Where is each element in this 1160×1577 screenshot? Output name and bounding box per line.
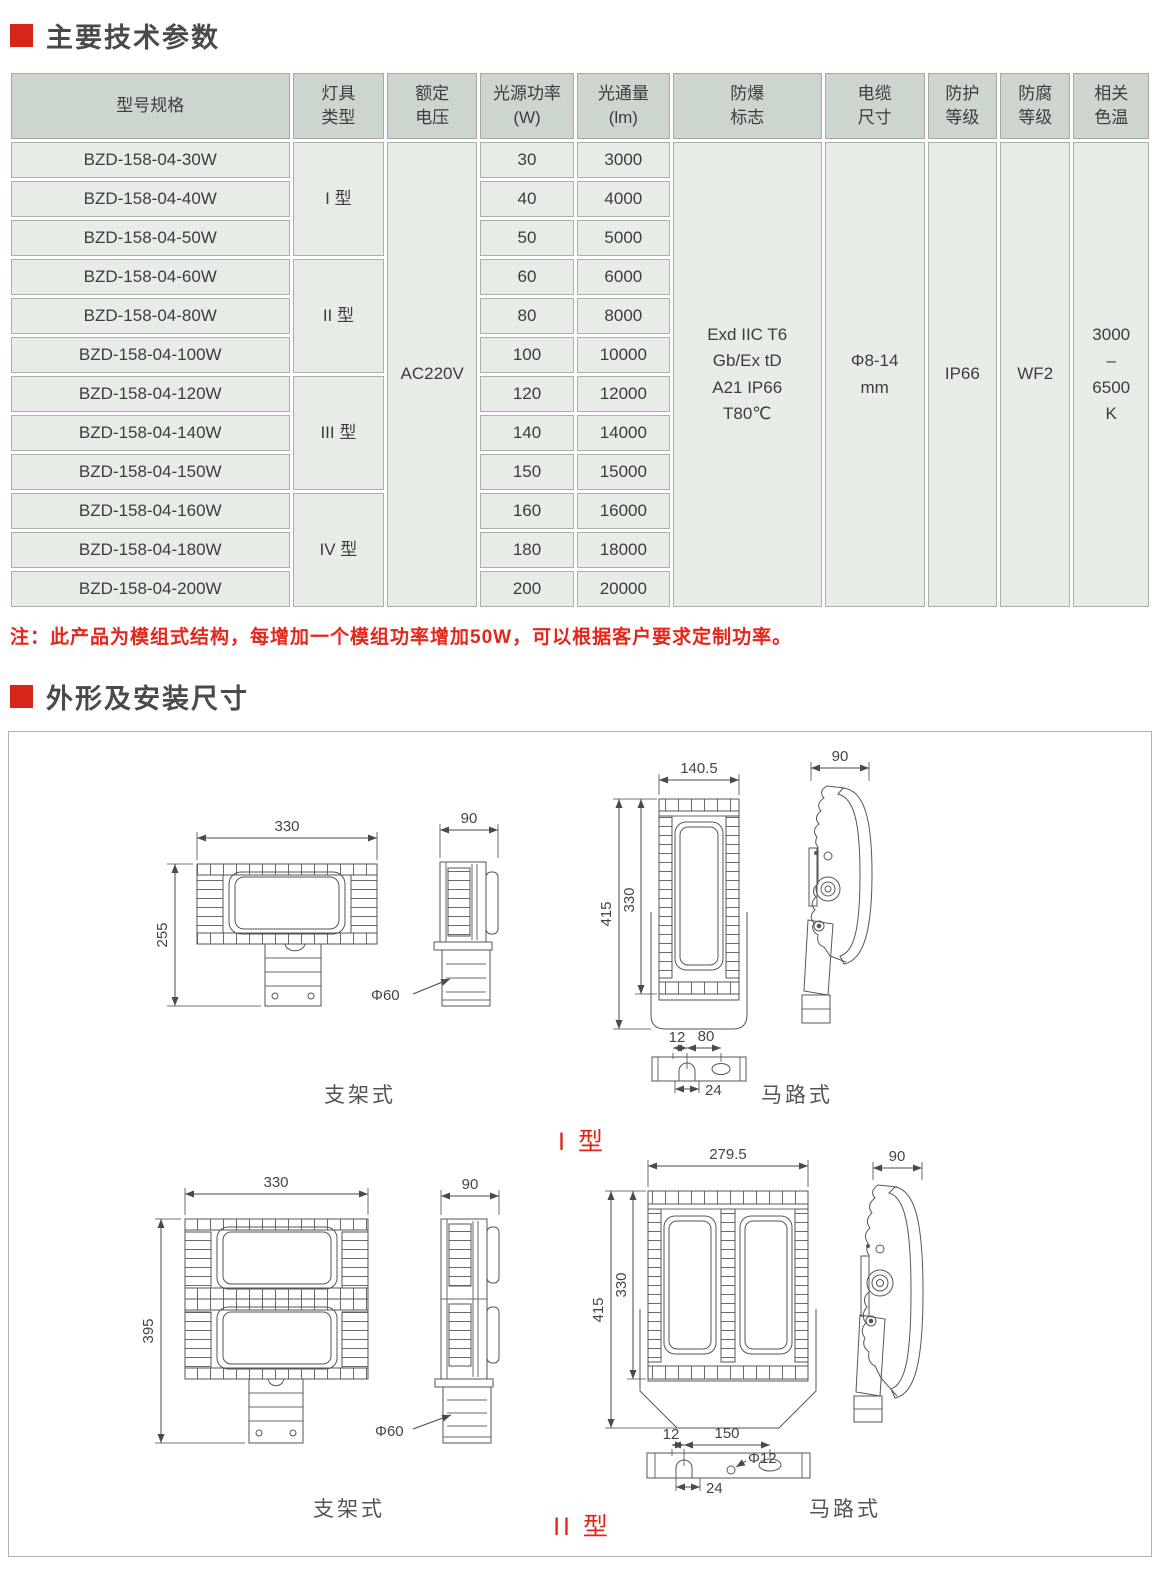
dimension-drawings-panel: 330 255 90 Φ60 xyxy=(8,731,1152,1557)
column-header-type: 灯具 类型 xyxy=(293,73,385,139)
column-header-cct: 相关 色温 xyxy=(1073,73,1149,139)
model-cell: BZD-158-04-80W xyxy=(11,298,290,334)
dim-label-front-width: 330 xyxy=(263,1174,288,1191)
dim-label-road-side-width: 90 xyxy=(889,1148,906,1165)
dim-label-road-total-height: 415 xyxy=(590,1297,607,1322)
model-cell: BZD-158-04-150W xyxy=(11,454,290,490)
flux-cell: 4000 xyxy=(577,181,670,217)
module-note: 注：此产品为模组式结构，每增加一个模组功率增加50W，可以根据客户要求定制功率。 xyxy=(10,622,1152,649)
spec-table: 型号规格 灯具 类型 额定 电压 光源功率 (W) 光通量 (lm) 防爆 标志… xyxy=(8,70,1152,610)
cable-cell: Φ8-14 mm xyxy=(825,142,925,607)
type2-group-label: II 型 xyxy=(553,1513,611,1541)
column-header-model: 型号规格 xyxy=(11,73,290,139)
model-cell: BZD-158-04-120W xyxy=(11,376,290,412)
model-cell: BZD-158-04-160W xyxy=(11,493,290,529)
type2-road-caption: 马路式 xyxy=(809,1498,881,1521)
model-cell: BZD-158-04-30W xyxy=(11,142,290,178)
type-cell: I 型 xyxy=(293,142,385,256)
flux-cell: 15000 xyxy=(577,454,670,490)
power-cell: 100 xyxy=(480,337,574,373)
model-cell: BZD-158-04-180W xyxy=(11,532,290,568)
power-cell: 140 xyxy=(480,415,574,451)
pole-diameter-label: Φ60 xyxy=(371,987,400,1004)
section-params-heading: 主要技术参数 xyxy=(10,16,1152,55)
flux-cell: 5000 xyxy=(577,220,670,256)
power-cell: 50 xyxy=(480,220,574,256)
type1-bracket-caption: 支架式 xyxy=(324,1084,396,1107)
flux-cell: 8000 xyxy=(577,298,670,334)
dim-label-front-height: 395 xyxy=(140,1318,157,1343)
flux-cell: 12000 xyxy=(577,376,670,412)
plate-dim-c-label: 24 xyxy=(705,1082,722,1099)
column-header-anticorrosion: 防腐 等级 xyxy=(1000,73,1070,139)
section-dims-heading: 外形及安装尺寸 xyxy=(10,677,1152,716)
model-cell: BZD-158-04-100W xyxy=(11,337,290,373)
dim-label-side-width: 90 xyxy=(462,1176,479,1193)
power-cell: 80 xyxy=(480,298,574,334)
power-cell: 180 xyxy=(480,532,574,568)
type1-bracket-front-view: 330 255 xyxy=(154,818,377,1006)
dim-label-road-total-height: 415 xyxy=(598,901,615,926)
power-cell: 200 xyxy=(480,571,574,607)
anticorrosion-cell: WF2 xyxy=(1000,142,1070,607)
model-cell: BZD-158-04-40W xyxy=(11,181,290,217)
type-cell: II 型 xyxy=(293,259,385,373)
dim-label-road-side-width: 90 xyxy=(832,748,849,765)
flux-cell: 3000 xyxy=(577,142,670,178)
model-cell: BZD-158-04-50W xyxy=(11,220,290,256)
type2-road-front-view: 279.5 415 330 12 150 Φ12 24 xyxy=(590,1146,816,1497)
type2-road-side-view: 90 xyxy=(854,1148,923,1422)
cct-cell: 3000 – 6500 K xyxy=(1073,142,1149,607)
power-cell: 150 xyxy=(480,454,574,490)
protection-cell: IP66 xyxy=(928,142,997,607)
flux-cell: 6000 xyxy=(577,259,670,295)
table-row: BZD-158-04-30W I 型 AC220V 30 3000 Exd II… xyxy=(11,142,1149,178)
type1-road-front-view: 140.5 415 330 12 80 24 xyxy=(598,760,747,1099)
model-cell: BZD-158-04-60W xyxy=(11,259,290,295)
column-header-protection: 防护 等级 xyxy=(928,73,997,139)
dimension-drawings: 330 255 90 Φ60 xyxy=(9,732,1151,1556)
plate-dim-b-label: 150 xyxy=(714,1425,739,1442)
red-square-bullet-icon xyxy=(10,685,33,708)
flux-cell: 16000 xyxy=(577,493,670,529)
type2-bracket-side-view: 90 Φ60 xyxy=(375,1176,499,1443)
flux-cell: 18000 xyxy=(577,532,670,568)
flux-cell: 14000 xyxy=(577,415,670,451)
flux-cell: 20000 xyxy=(577,571,670,607)
flux-cell: 10000 xyxy=(577,337,670,373)
section-dims-title: 外形及安装尺寸 xyxy=(46,677,249,716)
type1-road-side-view: 90 xyxy=(802,748,872,1023)
section-params-title: 主要技术参数 xyxy=(46,16,220,55)
type2-bracket-caption: 支架式 xyxy=(313,1498,385,1521)
dim-label-road-width: 279.5 xyxy=(709,1146,747,1163)
model-cell: BZD-158-04-140W xyxy=(11,415,290,451)
type1-bracket-side-view: 90 Φ60 xyxy=(371,810,498,1006)
plate-hole-label: Φ12 xyxy=(748,1450,777,1467)
dim-label-side-width: 90 xyxy=(461,810,478,827)
power-cell: 40 xyxy=(480,181,574,217)
power-cell: 120 xyxy=(480,376,574,412)
dim-label-road-width: 140.5 xyxy=(680,760,718,777)
column-header-cable: 电缆 尺寸 xyxy=(825,73,925,139)
ex-mark-cell: Exd IIC T6 Gb/Ex tD A21 IP66 T80℃ xyxy=(673,142,822,607)
type1-group-label: I 型 xyxy=(558,1128,606,1156)
plate-dim-c-label: 24 xyxy=(706,1480,723,1497)
type-cell: III 型 xyxy=(293,376,385,490)
power-cell: 30 xyxy=(480,142,574,178)
red-square-bullet-icon xyxy=(10,24,33,47)
column-header-power: 光源功率 (W) xyxy=(480,73,574,139)
header-row: 型号规格 灯具 类型 额定 电压 光源功率 (W) 光通量 (lm) 防爆 标志… xyxy=(11,73,1149,139)
plate-dim-a-label: 12 xyxy=(663,1426,680,1443)
type-cell: IV 型 xyxy=(293,493,385,607)
model-cell: BZD-158-04-200W xyxy=(11,571,290,607)
dim-label-front-height: 255 xyxy=(154,922,171,947)
column-header-voltage: 额定 电压 xyxy=(387,73,477,139)
pole-diameter-label: Φ60 xyxy=(375,1423,404,1440)
column-header-flux: 光通量 (lm) xyxy=(577,73,670,139)
voltage-cell: AC220V xyxy=(387,142,477,607)
type2-bracket-front-view: 330 395 xyxy=(140,1174,368,1443)
dim-label-front-width: 330 xyxy=(274,818,299,835)
dim-label-road-body-height: 330 xyxy=(613,1272,630,1297)
datasheet-page: 主要技术参数 型号规格 灯具 类型 额定 电压 光源功率 (W) 光通量 (lm… xyxy=(0,16,1160,1557)
power-cell: 160 xyxy=(480,493,574,529)
plate-dim-a-label: 12 xyxy=(669,1029,686,1046)
power-cell: 60 xyxy=(480,259,574,295)
dim-label-road-body-height: 330 xyxy=(621,887,638,912)
type1-road-caption: 马路式 xyxy=(761,1084,833,1107)
plate-dim-b-label: 80 xyxy=(698,1028,715,1045)
column-header-exmark: 防爆 标志 xyxy=(673,73,822,139)
